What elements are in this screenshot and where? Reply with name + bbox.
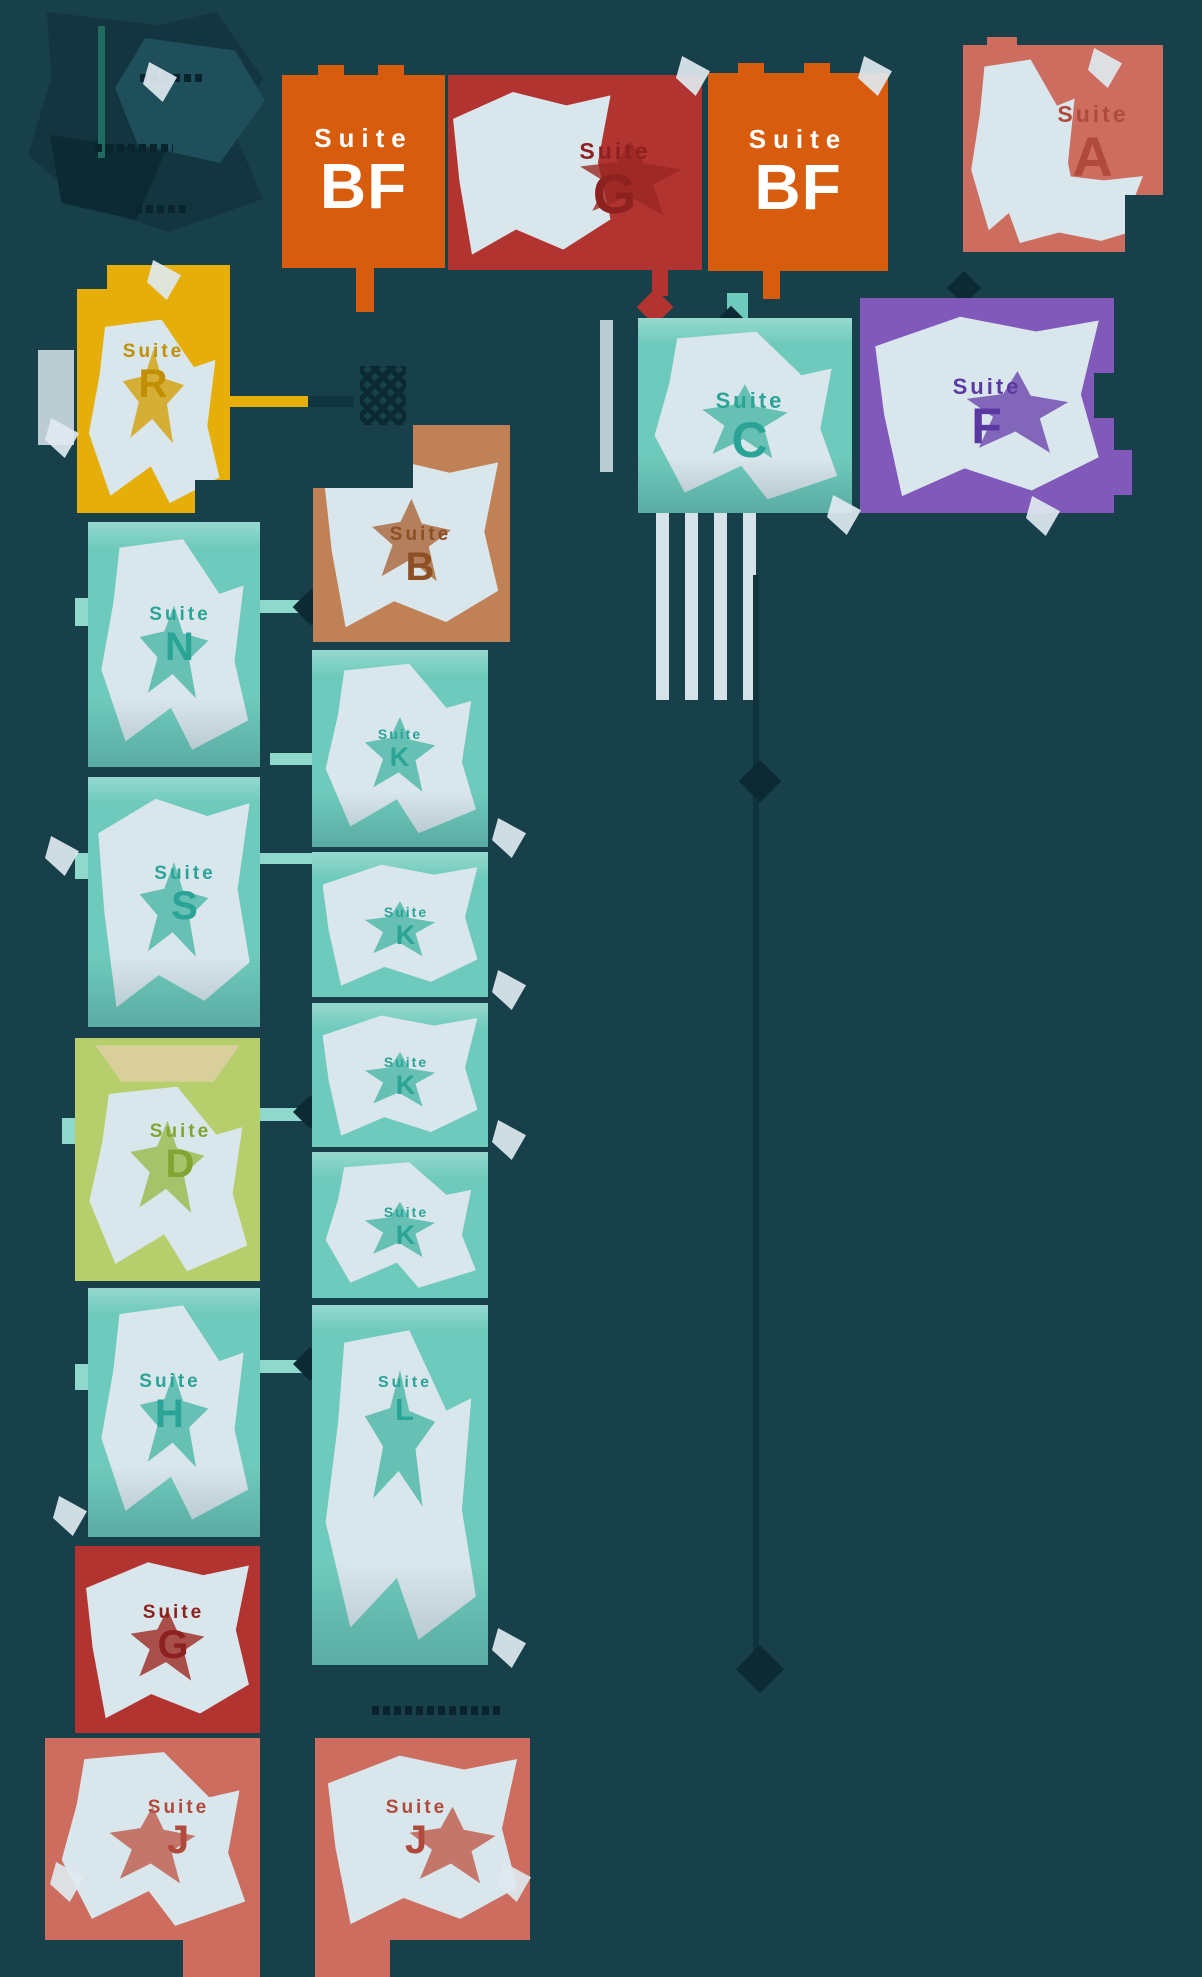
suite-label-word: Suite xyxy=(390,525,451,544)
door-connector xyxy=(62,1118,75,1144)
corridor-link-yellow xyxy=(230,396,308,407)
suite-label-word: Suite xyxy=(749,126,848,152)
suite-label-letter: J xyxy=(405,1820,428,1860)
wall-tooth xyxy=(318,65,344,75)
wall-notch xyxy=(313,425,413,488)
suite-j-south-right[interactable]: Suite J xyxy=(315,1738,530,1940)
suite-label: Suite K xyxy=(318,1005,494,1149)
suite-label: Suite S xyxy=(99,770,271,1020)
suite-r-west[interactable]: Suite R xyxy=(77,265,230,513)
suite-label-letter: D xyxy=(166,1144,196,1184)
suite-label: Suite G xyxy=(81,1540,266,1727)
corridor-line xyxy=(753,575,759,1687)
entrance-accent-strip xyxy=(98,26,105,158)
suite-label-letter: BF xyxy=(754,155,841,219)
connector-arrow-icon xyxy=(739,760,781,802)
suite-label-letter: S xyxy=(171,886,199,926)
suite-label: Suite F xyxy=(860,306,1114,521)
suite-label-word: Suite xyxy=(384,905,428,919)
suite-label-letter: K xyxy=(396,1072,417,1099)
suite-wing xyxy=(183,1940,260,1977)
suite-label: Suite D xyxy=(88,1031,273,1274)
suite-label: Suite BF xyxy=(708,73,888,271)
suite-label: Suite L xyxy=(317,1220,493,1580)
suite-label: Suite H xyxy=(84,1278,256,1527)
suite-bf-northwest[interactable]: Suite BF xyxy=(282,75,445,268)
corridor-pale-strip xyxy=(600,320,613,472)
suite-g-north[interactable]: Suite G xyxy=(448,75,702,270)
corridor-tick-text xyxy=(135,205,187,213)
suite-label: Suite N xyxy=(94,513,266,758)
suite-label-word: Suite xyxy=(149,605,210,624)
wall-nub xyxy=(1114,450,1132,495)
suite-l-mid-south[interactable]: Suite L xyxy=(312,1305,488,1665)
suite-label-letter: J xyxy=(167,1820,190,1860)
suite-k-mid-3[interactable]: Suite K xyxy=(312,1003,488,1147)
floor-plan-map: Suite BF Suite G Suite BF Suite A xyxy=(0,0,1202,1977)
door-arc-icon xyxy=(53,1496,87,1536)
suite-label-word: Suite xyxy=(143,1603,204,1622)
wall-notch xyxy=(77,265,107,289)
suite-label-word: Suite xyxy=(314,125,413,151)
door-arc-icon xyxy=(45,836,79,876)
suite-label-letter: G xyxy=(157,1625,189,1665)
suite-label: Suite BF xyxy=(282,75,445,268)
suite-label-word: Suite xyxy=(384,1205,428,1219)
wall-tooth xyxy=(378,65,404,75)
suite-c-central[interactable]: Suite C xyxy=(638,318,852,513)
suite-label: Suite C xyxy=(643,330,857,525)
corridor-link-dark xyxy=(308,396,354,407)
suite-n-west[interactable]: Suite N xyxy=(88,522,260,767)
suite-label-letter: K xyxy=(390,744,411,771)
suite-label-word: Suite xyxy=(378,1375,432,1391)
door-arc-icon xyxy=(492,818,526,858)
door-connector xyxy=(270,753,313,765)
suite-d-west[interactable]: Suite D xyxy=(75,1038,260,1281)
wall-notch xyxy=(1125,195,1163,252)
suite-label: Suite G xyxy=(488,83,742,278)
door-connector xyxy=(763,271,780,299)
door-connector xyxy=(75,853,88,879)
door-arc-icon xyxy=(492,1120,526,1160)
suite-label-word: Suite xyxy=(1057,103,1128,126)
suite-label: Suite J xyxy=(71,1728,286,1930)
suite-label-letter: A xyxy=(1072,129,1113,185)
connector-arrow-icon xyxy=(736,1645,784,1693)
suite-label: Suite J xyxy=(309,1728,524,1930)
wall-notch xyxy=(1094,373,1114,418)
suite-label-letter: B xyxy=(406,547,436,587)
corridor-tick-text xyxy=(372,1706,502,1715)
suite-s-west[interactable]: Suite S xyxy=(88,777,260,1027)
suite-label-letter: C xyxy=(731,415,768,465)
suite-h-west[interactable]: Suite H xyxy=(88,1288,260,1537)
suite-k-mid-1[interactable]: Suite K xyxy=(312,650,488,847)
wall-notch xyxy=(195,480,230,513)
suite-label-letter: H xyxy=(155,1394,185,1434)
suite-g-southwest[interactable]: Suite G xyxy=(75,1546,260,1733)
wall-tooth xyxy=(738,63,764,73)
door-connector xyxy=(356,268,374,312)
suite-label-word: Suite xyxy=(123,342,184,361)
suite-label-letter: K xyxy=(396,922,417,949)
suite-label: Suite K xyxy=(318,854,494,999)
suite-label-letter: BF xyxy=(320,154,407,218)
suite-label-word: Suite xyxy=(150,1122,211,1141)
suite-f-east[interactable]: Suite F xyxy=(860,298,1114,513)
suite-label-word: Suite xyxy=(378,727,422,741)
suite-label-word: Suite xyxy=(579,140,650,163)
suite-bf-north[interactable]: Suite BF xyxy=(708,73,888,271)
door-arc-icon xyxy=(492,1628,526,1668)
suite-label-word: Suite xyxy=(384,1055,428,1069)
corridor-tick-text xyxy=(95,144,173,152)
suite-label-letter: F xyxy=(971,401,1003,451)
suite-label-word: Suite xyxy=(139,1372,200,1391)
suite-label-letter: L xyxy=(395,1394,415,1425)
door-connector xyxy=(75,598,88,626)
wall-tooth xyxy=(804,63,830,73)
suite-k-mid-2[interactable]: Suite K xyxy=(312,852,488,997)
suite-label-word: Suite xyxy=(953,376,1022,398)
suite-wing xyxy=(315,1940,390,1977)
suite-label-letter: G xyxy=(593,166,638,222)
suite-label: Suite K xyxy=(312,650,488,847)
suite-label-word: Suite xyxy=(716,390,785,412)
suite-label-letter: N xyxy=(165,627,195,667)
suite-label-word: Suite xyxy=(148,1798,209,1817)
suite-label-word: Suite xyxy=(154,864,215,883)
suite-j-south-left[interactable]: Suite J xyxy=(45,1738,260,1940)
door-arc-icon xyxy=(492,970,526,1010)
suite-label-letter: R xyxy=(139,364,169,404)
suite-label-word: Suite xyxy=(386,1798,447,1817)
